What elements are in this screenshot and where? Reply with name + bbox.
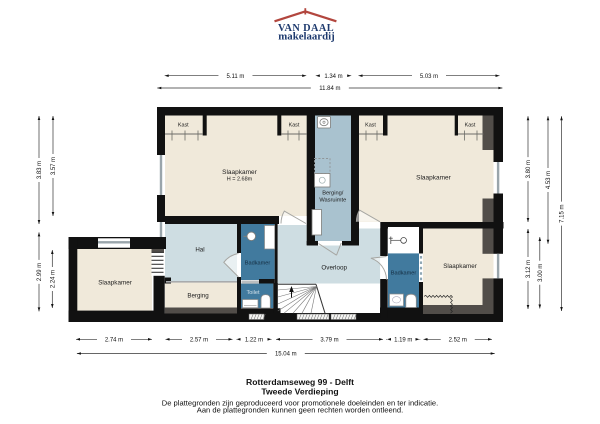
svg-text:Slaapkamer: Slaapkamer (222, 169, 258, 176)
svg-text:3.79 m: 3.79 m (320, 337, 338, 343)
svg-text:2.52 m: 2.52 m (449, 337, 467, 343)
svg-text:3.83 m: 3.83 m (37, 161, 43, 179)
svg-text:H = 2.68m: H = 2.68m (227, 177, 253, 183)
svg-text:Toilet: Toilet (246, 290, 260, 296)
svg-text:Wasruimte: Wasruimte (319, 197, 346, 203)
svg-text:5.03 m: 5.03 m (420, 74, 438, 80)
svg-text:2.99 m: 2.99 m (37, 263, 43, 281)
svg-text:1.19 m: 1.19 m (394, 337, 412, 343)
svg-text:11.84 m: 11.84 m (319, 86, 340, 92)
svg-text:Aan de plattegronden kunnen ge: Aan de plattegronden kunnen geen rechten… (197, 406, 403, 415)
svg-text:Berging: Berging (187, 293, 209, 300)
svg-text:Tweede Verdieping: Tweede Verdieping (261, 386, 338, 396)
svg-text:5.11 m: 5.11 m (226, 74, 244, 80)
svg-text:Kast: Kast (465, 123, 476, 129)
svg-text:Berging/: Berging/ (322, 191, 344, 197)
svg-text:3.80 m: 3.80 m (526, 160, 532, 178)
svg-text:Kast: Kast (365, 123, 376, 129)
svg-text:2.24 m: 2.24 m (50, 270, 56, 288)
svg-text:makelaardij: makelaardij (278, 31, 334, 43)
svg-text:Badkamer: Badkamer (391, 270, 417, 276)
svg-text:3.57 m: 3.57 m (51, 157, 57, 175)
svg-text:3.00 m: 3.00 m (538, 264, 544, 282)
svg-text:7.15 m: 7.15 m (560, 204, 566, 222)
svg-text:15.04 m: 15.04 m (275, 352, 297, 358)
svg-text:Kast: Kast (289, 123, 300, 129)
svg-text:1.34 m: 1.34 m (324, 74, 342, 80)
svg-text:3.12 m: 3.12 m (526, 260, 532, 278)
svg-text:Hal: Hal (195, 246, 204, 253)
svg-text:Badkamer: Badkamer (245, 261, 271, 267)
svg-text:Overloop: Overloop (321, 265, 347, 272)
svg-text:Slaapkamer: Slaapkamer (416, 175, 452, 182)
svg-text:Kast: Kast (178, 123, 189, 129)
svg-text:4.53 m: 4.53 m (546, 171, 552, 189)
svg-text:2.74 m: 2.74 m (105, 337, 123, 343)
svg-text:1.22 m: 1.22 m (245, 337, 263, 343)
svg-text:2.57 m: 2.57 m (190, 337, 208, 343)
svg-text:Slaapkamer: Slaapkamer (443, 263, 477, 270)
svg-text:Slaapkamer: Slaapkamer (98, 280, 132, 287)
